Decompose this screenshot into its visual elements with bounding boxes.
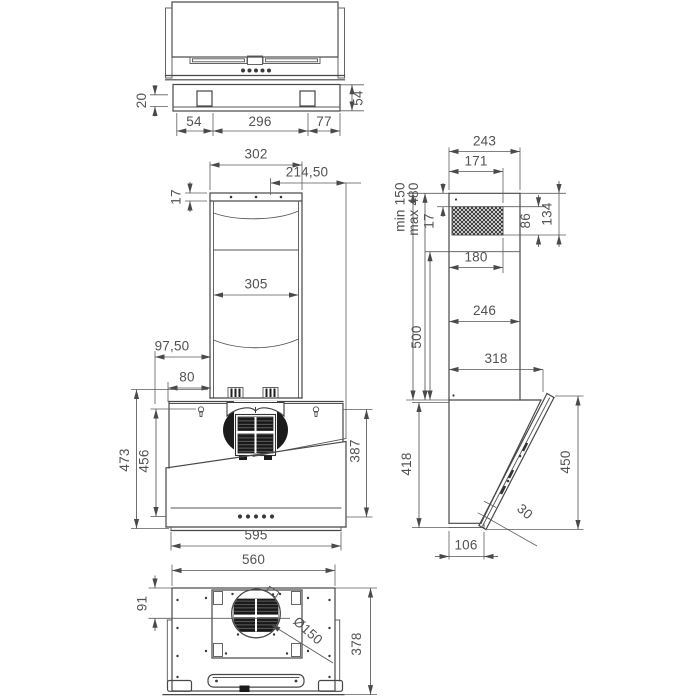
dim-side-glass-length: 450 [558, 450, 573, 473]
top-view-control-buttons [241, 69, 271, 73]
dim-side-base-depth: 106 [454, 538, 477, 553]
front-chimney-seam-lower [214, 339, 299, 348]
dim-front-chimney-width: 302 [244, 147, 267, 162]
top-view-right-bracket [300, 91, 315, 106]
dim-top-spacing-left: 54 [186, 114, 202, 129]
front-chimney-clamps [228, 388, 278, 399]
dim-side-glass-gap: 30 [514, 501, 535, 522]
dim-front-height-inner: 456 [137, 449, 152, 472]
dim-side-grille-height: 86 [518, 213, 533, 228]
dim-side-depth-top: 243 [473, 134, 496, 149]
dim-front-offset-lower: 80 [179, 370, 194, 385]
dim-top-spacing-center: 296 [248, 114, 271, 129]
bottom-left-foot [168, 681, 192, 692]
top-view: 20 54 54 296 77 [134, 2, 366, 136]
top-view-left-bracket [197, 91, 212, 106]
dim-side-grille-offset: 17 [422, 213, 437, 228]
dim-side-body-height: 418 [399, 452, 414, 475]
cooker-hood-dimension-drawing: 20 54 54 296 77 [0, 0, 700, 700]
dim-side-grille-span: 134 [540, 202, 555, 225]
dim-bottom-outlet-diameter: Ø150 [290, 614, 325, 648]
dim-side-ext-max: max 480 [406, 182, 421, 235]
dim-side-depth-lower: 318 [484, 351, 507, 366]
dim-bottom-width: 560 [242, 552, 265, 567]
front-keyhole-right [313, 407, 318, 417]
dim-side-chimney-height: 500 [409, 325, 424, 348]
dim-front-body-width: 595 [244, 528, 267, 543]
dim-side-depth-mid: 246 [473, 303, 496, 318]
top-view-glass-panel [172, 2, 338, 57]
bottom-outlet-grille [234, 599, 278, 632]
bottom-handle-bar [208, 675, 304, 693]
front-chimney-seam-upper [214, 211, 299, 219]
dim-side-bracket-width: 180 [464, 250, 487, 265]
front-control-buttons [238, 514, 274, 518]
dim-front-offset-upper: 97,50 [155, 339, 190, 354]
dim-bottom-depth: 378 [349, 632, 364, 655]
front-keyhole-left [198, 407, 203, 417]
dim-bottom-outlet-offset: 91 [135, 596, 150, 611]
top-view-right-strip [338, 8, 345, 78]
side-exhaust-grille [452, 207, 503, 235]
front-view: 302 17 214,50 305 97,50 80 473 456 [117, 147, 373, 551]
dim-top-plate-depth: 54 [351, 90, 366, 106]
bottom-view: 560 91 Ø150 378 [135, 552, 378, 695]
dim-front-cap-height: 17 [169, 189, 184, 204]
dim-front-height-overall: 473 [117, 448, 132, 471]
dim-front-duct-width: 305 [244, 277, 267, 292]
top-view-left-strip [166, 8, 173, 78]
side-view: 243 171 17 min 150 max 480 500 86 134 [393, 134, 584, 560]
bottom-right-foot [319, 681, 343, 692]
technical-drawing-page: 20 54 54 296 77 [0, 0, 700, 700]
dim-front-outlet-offset: 214,50 [286, 165, 329, 180]
dim-top-spacing-right: 77 [316, 114, 331, 129]
dim-front-glass-height: 387 [348, 439, 363, 462]
dim-side-grille-width: 171 [464, 154, 487, 169]
dim-top-bracket-height: 20 [134, 93, 149, 108]
